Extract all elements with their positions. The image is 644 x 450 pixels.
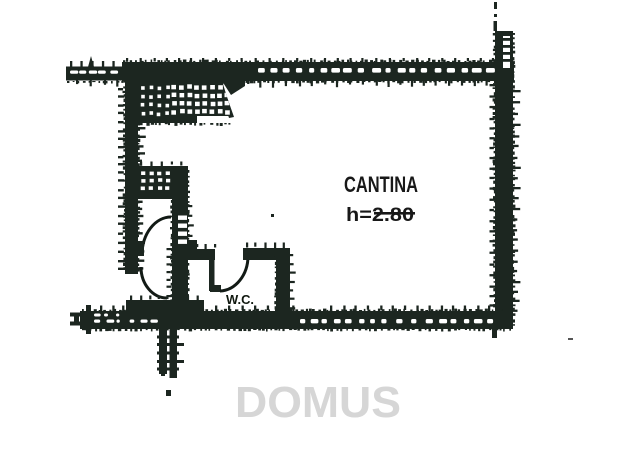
svg-text:DOMUS: DOMUS [235,379,401,427]
svg-text:CANTINA: CANTINA [344,172,418,197]
svg-text:h=2.80: h=2.80 [346,204,414,226]
svg-text:W.C.: W.C. [226,292,254,307]
